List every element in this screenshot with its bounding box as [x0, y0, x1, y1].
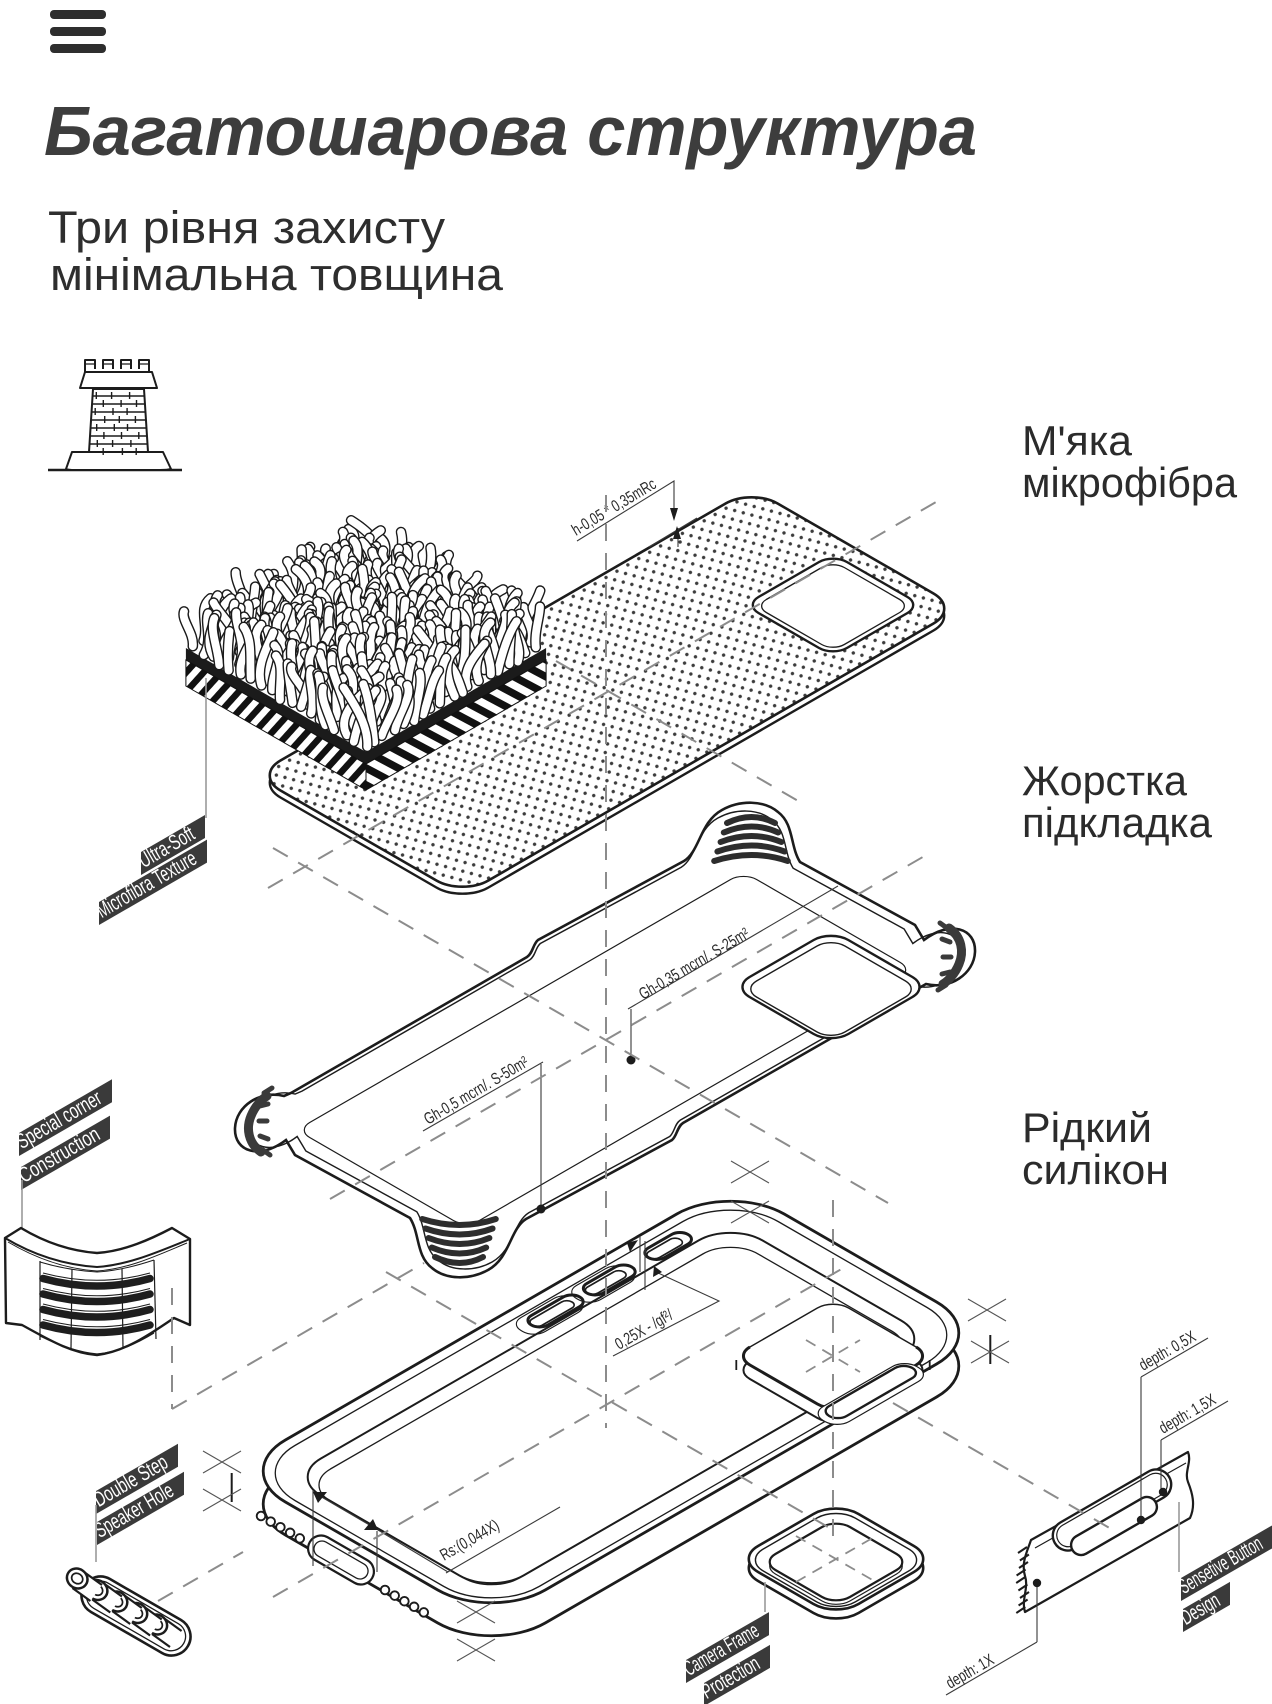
svg-text:Три рівня захисту: Три рівня захисту — [48, 202, 446, 253]
svg-text:Рідкий: Рідкий — [1022, 1104, 1152, 1151]
svg-text:depth: 1,5X: depth: 1,5X — [1156, 1391, 1219, 1438]
svg-text:depth: 1X: depth: 1X — [943, 1651, 998, 1693]
svg-text:h-0,05 * 0,35mRc: h-0,05 * 0,35mRc — [569, 475, 660, 539]
svg-text:depth: 0,5X: depth: 0,5X — [1136, 1328, 1199, 1375]
svg-text:мікрофібра: мікрофібра — [1022, 459, 1238, 506]
svg-text:М'яка: М'яка — [1022, 417, 1133, 464]
svg-text:Багатошарова структура: Багатошарова структура — [44, 92, 977, 170]
svg-text:мінімальна товщина: мінімальна товщина — [50, 249, 504, 300]
svg-text:Жорстка: Жорстка — [1022, 757, 1188, 804]
svg-text:силікон: силікон — [1022, 1146, 1169, 1193]
svg-text:підкладка: підкладка — [1022, 799, 1213, 846]
